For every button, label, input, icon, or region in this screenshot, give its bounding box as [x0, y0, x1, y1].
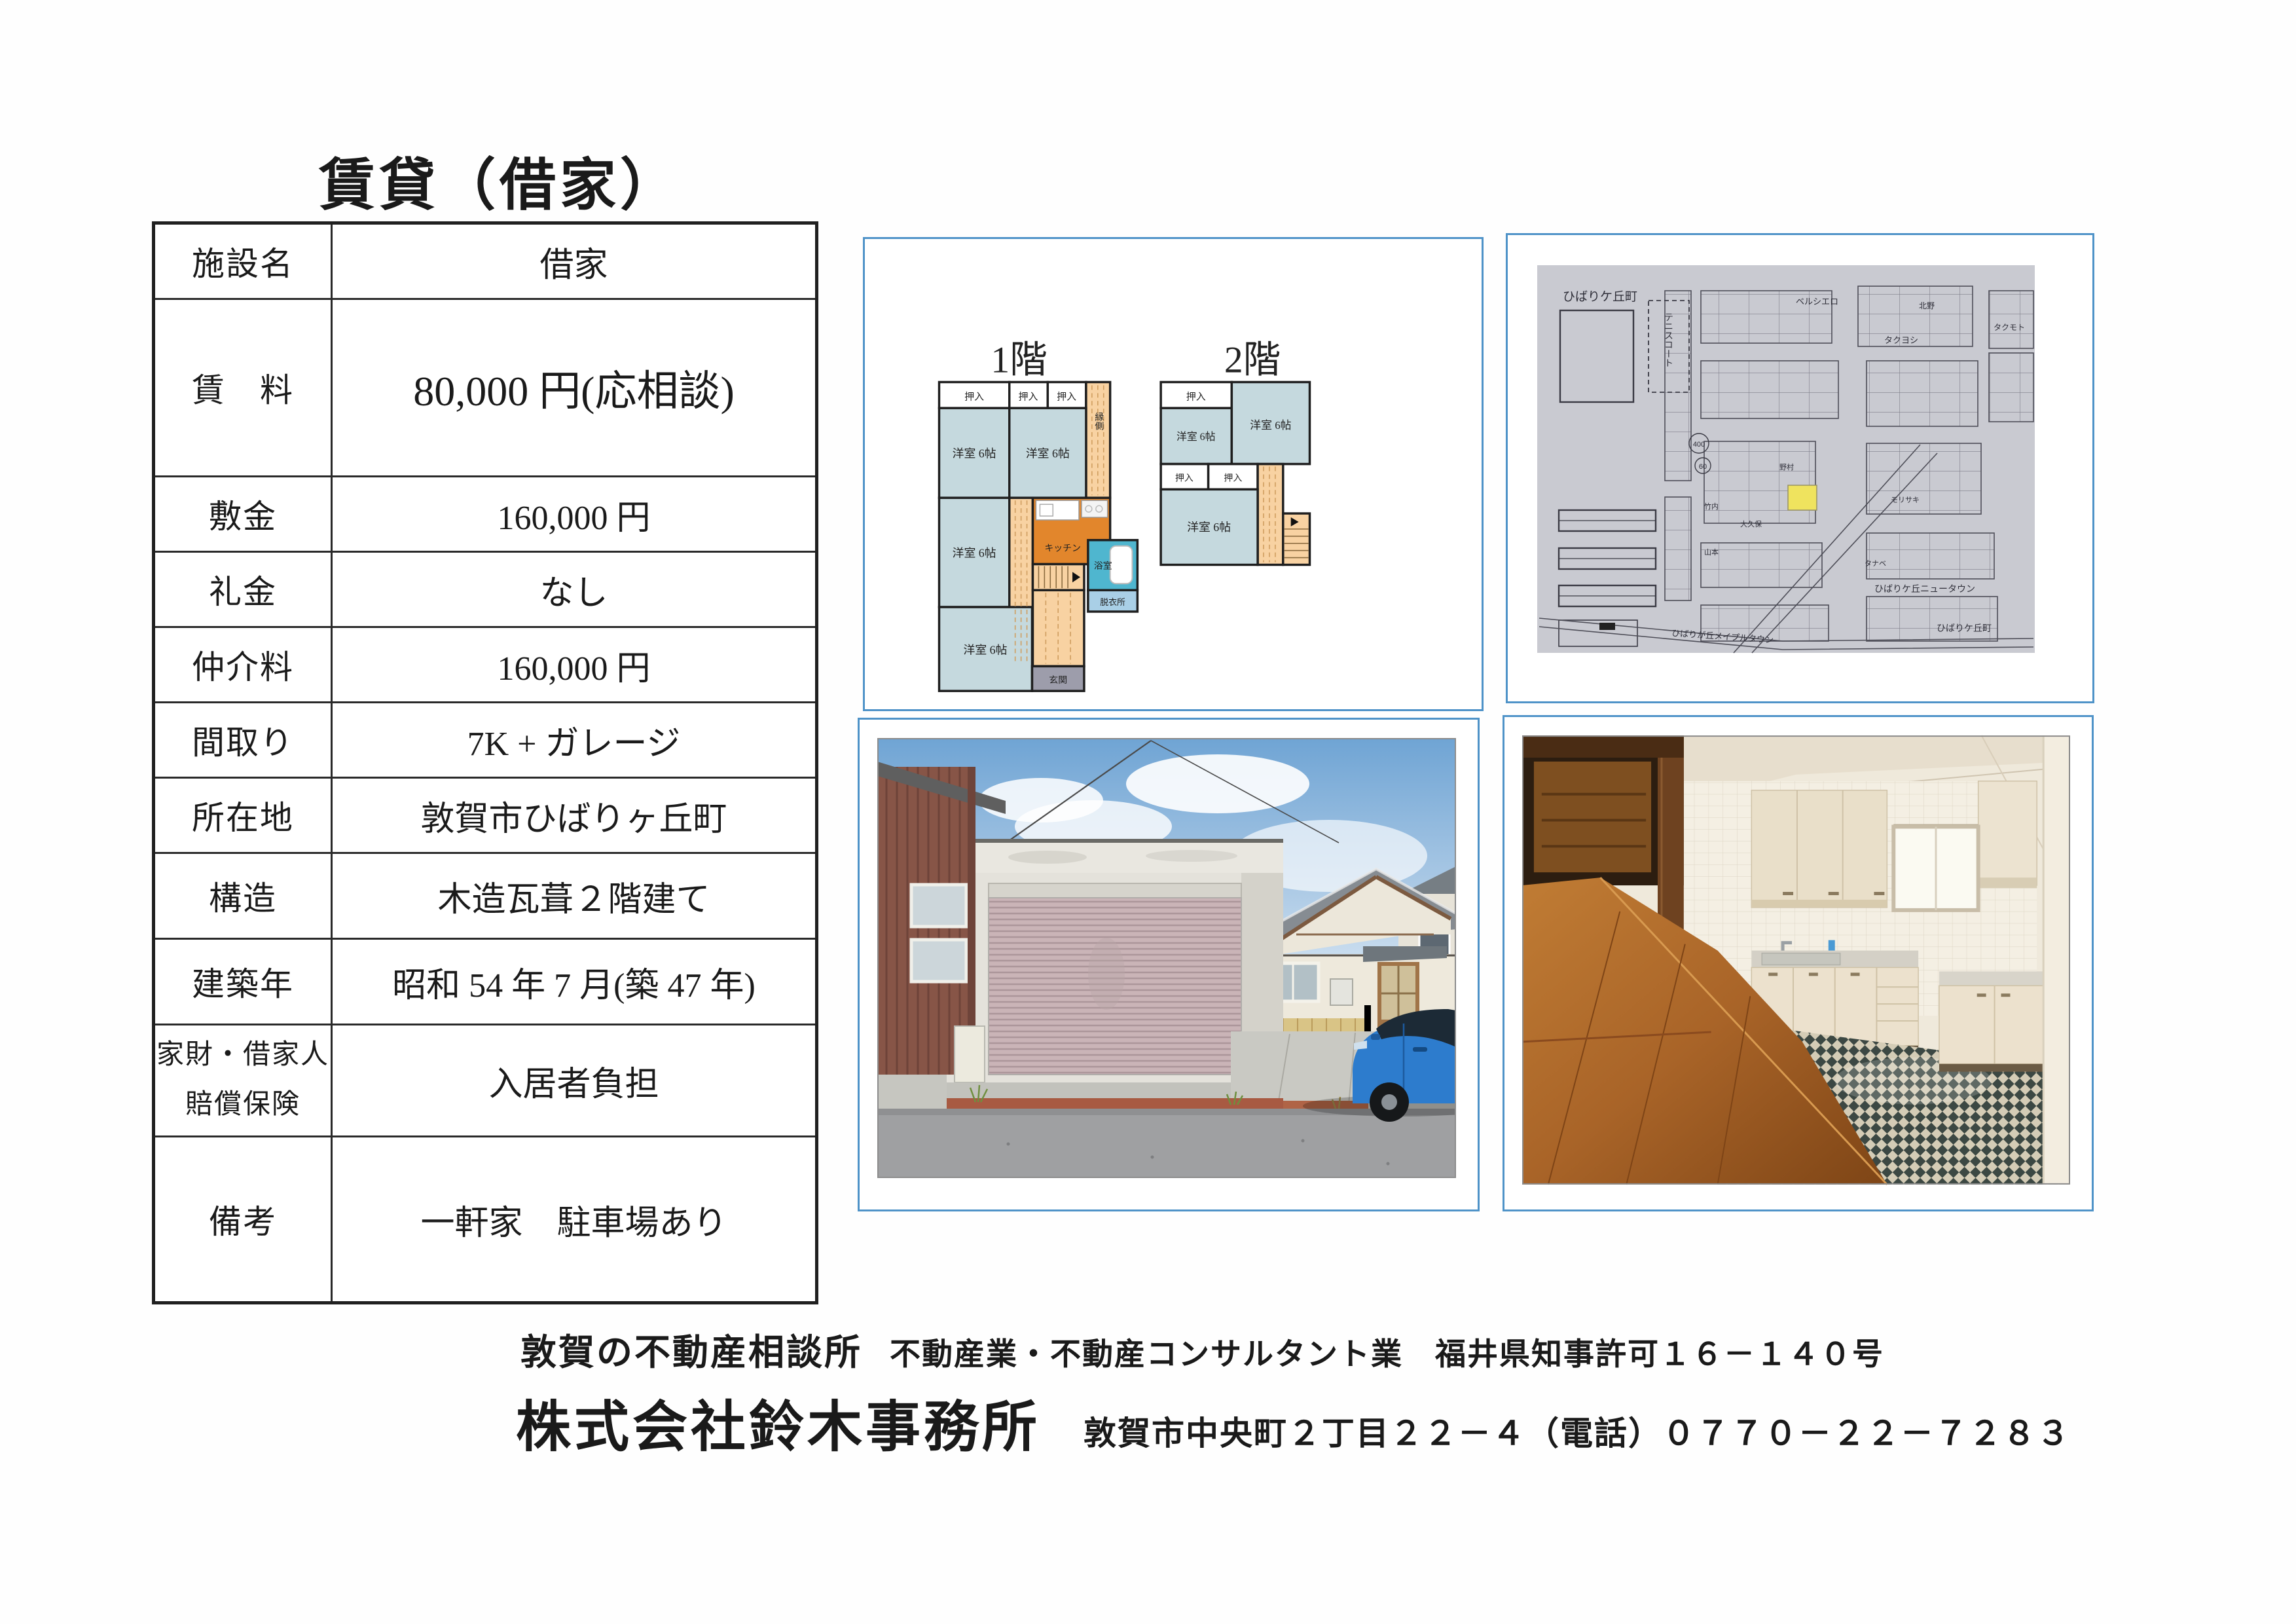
closet-label: 押入 [1175, 473, 1194, 483]
closet-label: 押入 [964, 391, 984, 402]
row-label: 建築年 [155, 940, 333, 1024]
map-label: 竹内 [1704, 502, 1719, 511]
closet-label: 押入 [1186, 391, 1206, 402]
room-label: 洋室 6帖 [1250, 419, 1291, 432]
footer-company-line: 株式会社鈴木事務所 敦賀市中央町２丁目２２－４（電話）０７７０－２２－７２８３ [516, 1383, 2071, 1462]
kitchen-window [1893, 824, 1978, 910]
row-value: 160,000 円 [333, 477, 815, 551]
map-label: 北野 [1919, 301, 1935, 310]
row-value: 敦賀市ひばりヶ丘町 [333, 779, 815, 852]
room-label: 洋室 6帖 [964, 644, 1008, 657]
rental-flyer-page: 賃貸（借家） 施設名 借家 賃 料 80,000 円(応相談) 敷金 160,0… [0, 0, 2296, 1624]
row-label: 構造 [155, 854, 333, 938]
closet-label: 押入 [1057, 391, 1076, 402]
row-label: 備考 [155, 1137, 333, 1301]
engawa-label: 縁側 [1093, 412, 1104, 430]
row-label-line1: 家財・借家人 [156, 1031, 329, 1080]
footer-office-line: 敦賀の不動産相談所 不動産業・不動産コンサルタント業 福井県知事許可１６－１４０… [520, 1323, 1884, 1375]
row-label: 礼金 [155, 553, 333, 626]
row-value: なし [333, 553, 815, 626]
table-row: 家財・借家人 賠償保険 入居者負担 [155, 1024, 815, 1135]
floorplan-illustration: 1階 2階 [865, 239, 1478, 705]
room-label: 洋室 6帖 [1176, 431, 1216, 443]
row-label: 所在地 [155, 779, 333, 852]
row-value: 160,000 円 [333, 628, 815, 701]
office-name: 敦賀の不動産相談所 [520, 1323, 862, 1375]
map-label: タクモト [1994, 323, 2025, 332]
map-label: ベルシエロ [1796, 297, 1838, 306]
floor2-title: 2階 [1224, 340, 1281, 381]
bath-label: 浴室 [1094, 560, 1112, 571]
table-row: 建築年 昭和 54 年 7 月(築 47 年) [155, 938, 815, 1024]
map-panel: 400 60 ひばりケ丘町 テニスコート ベルシエロ タクヨシ 北野 タクモト … [1506, 233, 2094, 703]
floorplan-panel: 1階 2階 [863, 237, 1484, 711]
room-label: 洋室 6帖 [953, 547, 996, 560]
row-label: 間取り [155, 703, 333, 777]
company-name: 株式会社鈴木事務所 [516, 1383, 1040, 1462]
closet-label: 押入 [1224, 473, 1242, 483]
row-label: 敷金 [155, 477, 333, 551]
table-row: 賃 料 80,000 円(応相談) [155, 298, 815, 475]
map-label: タナベ [1865, 559, 1886, 568]
kitchen-label: キッチン [1044, 544, 1081, 554]
exterior-photo [877, 738, 1456, 1178]
row-label: 仲介料 [155, 628, 333, 701]
row-value: 7K + ガレージ [333, 703, 815, 777]
row-label: 施設名 [155, 225, 333, 298]
map-label: タクヨシ [1884, 335, 1918, 345]
row-value: 昭和 54 年 7 月(築 47 年) [333, 940, 815, 1024]
table-row: 敷金 160,000 円 [155, 475, 815, 551]
map-label: モリサキ [1891, 496, 1920, 504]
table-row: 所在地 敦賀市ひばりヶ丘町 [155, 777, 815, 852]
table-row: 施設名 借家 [155, 225, 815, 298]
signboard [955, 1026, 985, 1082]
row-value: 入居者負担 [333, 1025, 815, 1135]
entrance-label: 玄関 [1049, 674, 1067, 686]
row-label-line2: 賠償保険 [185, 1080, 301, 1130]
room-label: 洋室 6帖 [1187, 521, 1231, 534]
room-label: 洋室 6帖 [953, 447, 996, 460]
property-table: 施設名 借家 賃 料 80,000 円(応相談) 敷金 160,000 円 礼金… [152, 221, 818, 1304]
map-highlighted-parcel [1788, 485, 1817, 510]
row-label: 賃 料 [155, 300, 333, 475]
route-number: 60 [1699, 463, 1707, 471]
map-label-newtown: ひばりケ丘ニュータウン [1874, 583, 1975, 594]
office-license: 不動産業・不動産コンサルタント業 福井県知事許可１６－１４０号 [890, 1329, 1884, 1375]
map-rail-mark [1599, 623, 1615, 630]
room-label: 洋室 6帖 [1026, 447, 1070, 460]
right-near-wall [2043, 735, 2070, 1185]
table-row: 構造 木造瓦葺２階建て [155, 852, 815, 938]
closet-label: 押入 [1019, 391, 1038, 402]
map-label-town-br: ひばりケ丘町 [1937, 623, 1992, 633]
row-value: 借家 [333, 225, 815, 298]
page-title: 賃貸（借家） [319, 139, 680, 221]
table-row: 礼金 なし [155, 551, 815, 626]
route-number: 400 [1693, 441, 1705, 449]
row-value: 木造瓦葺２階建て [333, 854, 815, 938]
map-illustration: 400 60 ひばりケ丘町 テニスコート ベルシエロ タクヨシ 北野 タクモト … [1508, 235, 2088, 697]
map-label: 大久保 [1740, 519, 1762, 528]
map-label: 山本 [1704, 547, 1719, 557]
row-value: 80,000 円(応相談) [333, 300, 815, 475]
row-label: 家財・借家人 賠償保険 [155, 1025, 333, 1135]
floor1-title: 1階 [991, 340, 1047, 381]
kitchen-photo [1522, 735, 2070, 1185]
table-row: 仲介料 160,000 円 [155, 626, 815, 701]
exterior-photo-panel [858, 718, 1480, 1211]
row-value: 一軒家 駐車場あり [333, 1137, 815, 1301]
dressing-label: 脱衣所 [1100, 597, 1125, 607]
map-label-town: ひばりケ丘町 [1563, 289, 1637, 304]
table-row: 間取り 7K + ガレージ [155, 701, 815, 777]
map-label-tennis: テニスコート [1664, 312, 1674, 367]
table-row: 備考 一軒家 駐車場あり [155, 1135, 815, 1301]
kitchen-photo-panel [1503, 715, 2094, 1211]
company-address: 敦賀市中央町２丁目２２－４（電話）０７７０－２２－７２８３ [1084, 1407, 2071, 1462]
map-label: 野村 [1779, 462, 1794, 471]
right-base-cabinet [1939, 971, 2050, 1071]
